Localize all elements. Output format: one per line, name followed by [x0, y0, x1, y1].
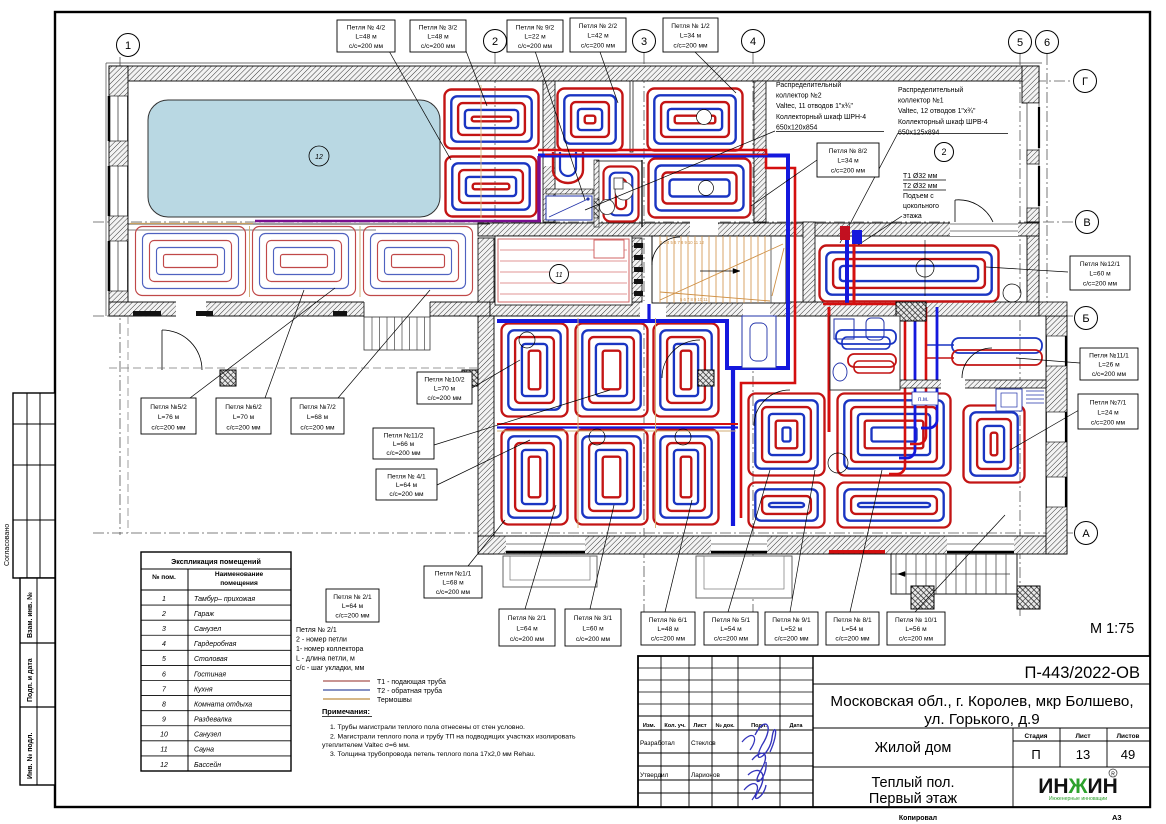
svg-text:Сауна: Сауна: [194, 747, 214, 754]
svg-text:А3: А3: [1112, 813, 1122, 822]
svg-text:Петля № 3/2: Петля № 3/2: [419, 25, 458, 32]
svg-text:650х120х854: 650х120х854: [776, 124, 818, 131]
svg-text:13: 13: [1076, 747, 1090, 762]
svg-text:Гардеробная: Гардеробная: [194, 640, 237, 648]
svg-text:М 1:75: М 1:75: [1090, 621, 1134, 637]
svg-text:5: 5: [162, 656, 166, 663]
svg-text:этажа: этажа: [903, 213, 922, 220]
svg-text:5: 5: [1017, 37, 1023, 49]
svg-text:2: 2: [941, 147, 946, 157]
svg-text:4: 4: [162, 641, 166, 648]
svg-text:Петля № 2/1: Петля № 2/1: [296, 627, 337, 634]
svg-text:Теплый пол.: Теплый пол.: [871, 775, 954, 791]
svg-text:с/с=200 мм: с/с=200 мм: [835, 636, 870, 643]
svg-text:Б: Б: [1082, 313, 1089, 325]
svg-text:Санузел: Санузел: [194, 626, 221, 633]
svg-text:1. Трубы магистрали теплого: 1. Трубы магистрали теплого пола отнесен…: [330, 723, 525, 731]
svg-text:с/с=200 мм: с/с=200 мм: [335, 613, 370, 620]
svg-text:Петля № 2/1: Петля № 2/1: [508, 615, 547, 622]
svg-text:с/с=200 мм: с/с=200 мм: [389, 491, 424, 498]
svg-text:коллектор №2: коллектор №2: [776, 93, 822, 100]
svg-text:Кол. уч.: Кол. уч.: [664, 723, 686, 729]
svg-text:Петля №7/2: Петля №7/2: [299, 404, 336, 411]
svg-text:1: 1: [125, 40, 131, 52]
svg-text:с/с=200 мм: с/с=200 мм: [831, 168, 866, 175]
svg-text:4: 4: [750, 36, 756, 48]
svg-text:Петля № 10/1: Петля № 10/1: [895, 617, 937, 624]
svg-text:49: 49: [1121, 747, 1135, 762]
svg-text:Разработал: Разработал: [640, 739, 675, 747]
svg-text:L=64 м: L=64 м: [396, 482, 418, 489]
svg-text:Распределительный: Распределительный: [776, 81, 841, 89]
svg-text:помещения: помещения: [220, 580, 258, 587]
svg-text:Подп. и дата: Подп. и дата: [27, 658, 34, 702]
svg-text:1: 1: [162, 596, 166, 603]
svg-text:Подъем с: Подъем с: [903, 193, 934, 200]
svg-text:Московская обл., г. Королев, м: Московская обл., г. Королев, мкр Болшево…: [830, 693, 1133, 710]
svg-text:11: 11: [555, 272, 562, 279]
svg-text:Санузел: Санузел: [194, 732, 221, 739]
svg-text:коллектор №1: коллектор №1: [898, 98, 944, 105]
svg-text:с/с=200 мм: с/с=200 мм: [421, 43, 456, 50]
svg-text:L=54 м: L=54 м: [720, 626, 742, 633]
svg-text:Комната отдыха: Комната отдыха: [194, 700, 252, 708]
svg-text:2: 2: [492, 36, 498, 48]
svg-text:Т1 Ø32 мм: Т1 Ø32 мм: [903, 173, 938, 180]
svg-text:2 - номер петли: 2 - номер петли: [296, 637, 347, 644]
svg-text:Петля № 6/1: Петля № 6/1: [649, 617, 688, 624]
svg-text:Г: Г: [1082, 76, 1088, 88]
svg-text:L=52 м: L=52 м: [781, 626, 803, 633]
svg-text:Т2 Ø32 мм: Т2 Ø32 мм: [903, 183, 938, 190]
svg-text:Термошвы: Термошвы: [377, 697, 412, 704]
svg-text:с/с=200 мм: с/с=200 мм: [436, 589, 471, 596]
svg-text:с/с=200 мм: с/с=200 мм: [576, 636, 611, 643]
svg-text:Дата: Дата: [790, 723, 804, 729]
svg-text:Петля № 4/1: Петля № 4/1: [387, 473, 426, 480]
svg-text:Гостиная: Гостиная: [194, 671, 226, 678]
svg-text:с/с=200 мм: с/с=200 мм: [510, 636, 545, 643]
svg-text:Согласовано: Согласовано: [4, 524, 11, 566]
svg-text:L=26 м: L=26 м: [1098, 362, 1120, 369]
svg-text:п.м.: п.м.: [918, 397, 929, 403]
svg-text:Жилой дом: Жилой дом: [875, 740, 952, 756]
svg-text:L=60 м: L=60 м: [582, 625, 604, 632]
svg-text:с/с=200 мм: с/с=200 мм: [1091, 419, 1126, 426]
svg-text:Valtec, 11 отводов 1"х¾": Valtec, 11 отводов 1"х¾": [776, 103, 854, 110]
svg-text:L=34 м: L=34 м: [837, 158, 859, 165]
svg-text:L=68 м: L=68 м: [307, 414, 329, 421]
svg-text:6: 6: [1044, 37, 1050, 49]
svg-text:Лист: Лист: [693, 723, 706, 729]
svg-text:Петля №6/2: Петля №6/2: [225, 404, 262, 411]
svg-text:Наименование: Наименование: [215, 571, 264, 578]
svg-text:L=34 м: L=34 м: [680, 33, 702, 40]
svg-text:Петля № 1/2: Петля № 1/2: [671, 23, 710, 30]
svg-text:Петля № 2/2: Петля № 2/2: [579, 23, 618, 30]
svg-text:3: 3: [162, 626, 166, 633]
svg-text:Т2 - обратная труба: Т2 - обратная труба: [377, 687, 442, 695]
svg-text:Кухня: Кухня: [194, 686, 213, 693]
svg-text:Петля №12/1: Петля №12/1: [1080, 261, 1121, 268]
svg-text:Копировал: Копировал: [899, 815, 937, 822]
svg-text:Изм.: Изм.: [643, 723, 656, 729]
svg-text:Петля № 8/1: Петля № 8/1: [833, 617, 872, 624]
svg-text:с/с=200 мм: с/с=200 мм: [581, 43, 616, 50]
svg-text:12: 12: [160, 762, 168, 769]
svg-text:Петля №7/1: Петля №7/1: [1090, 400, 1127, 407]
svg-text:Раздевалка: Раздевалка: [194, 716, 232, 724]
svg-text:8: 8: [162, 701, 166, 708]
svg-text:№ док.: № док.: [715, 723, 735, 729]
svg-text:Первый этаж: Первый этаж: [869, 791, 957, 807]
svg-text:L=48 м: L=48 м: [657, 626, 679, 633]
svg-text:Инв. № подл.: Инв. № подл.: [26, 732, 34, 779]
svg-text:L=66 м: L=66 м: [393, 441, 415, 448]
svg-text:Утвердил: Утвердил: [640, 772, 669, 779]
svg-text:цокольного: цокольного: [903, 203, 939, 210]
svg-text:ул. Горького, д.9: ул. Горького, д.9: [924, 711, 1039, 728]
svg-text:Петля № 2/1: Петля № 2/1: [333, 594, 372, 601]
svg-text:Лист: Лист: [1075, 733, 1090, 740]
svg-text:с/с=200 мм: с/с=200 мм: [774, 636, 809, 643]
svg-text:6: 6: [162, 671, 166, 678]
svg-text:с/с=200 мм: с/с=200 мм: [899, 636, 934, 643]
svg-text:с/с=200 мм: с/с=200 мм: [386, 450, 421, 457]
svg-text:с/с=200 мм: с/с=200 мм: [1092, 371, 1127, 378]
svg-text:L=24 м: L=24 м: [1097, 409, 1119, 416]
svg-text:9: 9: [162, 717, 166, 724]
svg-text:П: П: [1031, 747, 1040, 762]
svg-text:L=54 м: L=54 м: [842, 626, 864, 633]
svg-text:Стадия: Стадия: [1024, 733, 1047, 740]
svg-text:Гараж: Гараж: [194, 611, 215, 618]
svg-text:L=64 м: L=64 м: [342, 603, 364, 610]
svg-text:L=60 м: L=60 м: [1089, 271, 1111, 278]
svg-text:В: В: [1083, 217, 1090, 229]
svg-text:Петля №11/1: Петля №11/1: [1089, 353, 1129, 360]
svg-text:Петля № 3/1: Петля № 3/1: [574, 615, 613, 622]
svg-text:Т1 - подающая труба: Т1 - подающая труба: [377, 678, 446, 686]
svg-text:№ пом.: № пом.: [152, 574, 176, 581]
svg-text:с/с=200 мм: с/с=200 мм: [518, 43, 553, 50]
svg-text:с/с=200 мм: с/с=200 мм: [151, 424, 186, 431]
svg-text:10: 10: [160, 732, 168, 739]
svg-text:2. Магистрали теплого пола: 2. Магистрали теплого пола и трубу ТП на…: [330, 733, 576, 741]
svg-text:Петля № 9/2: Петля № 9/2: [516, 25, 555, 32]
svg-text:Коллекторный шкаф ШРВ-4: Коллекторный шкаф ШРВ-4: [898, 118, 988, 126]
svg-text:Тамбур– прихожая: Тамбур– прихожая: [194, 595, 255, 603]
svg-text:Взам. инв. №: Взам. инв. №: [26, 592, 34, 638]
svg-text:5 6 7 8 9 10 11: 5 6 7 8 9 10 11: [680, 297, 708, 302]
svg-text:2 3 4 5 6 7 8 9 10 11 12: 2 3 4 5 6 7 8 9 10 11 12: [660, 240, 705, 245]
svg-text:с/с=200 мм: с/с=200 мм: [349, 43, 384, 50]
svg-text:Листов: Листов: [1117, 733, 1140, 740]
svg-text:Петля №5/2: Петля №5/2: [150, 404, 187, 411]
svg-text:L=76 м: L=76 м: [158, 414, 180, 421]
svg-text:3. Толщина трубопровода пет: 3. Толщина трубопровода петель теплого п…: [330, 750, 536, 758]
svg-text:с/с=200 мм: с/с=200 мм: [673, 43, 708, 50]
svg-text:L - длина петли, м: L - длина петли, м: [296, 656, 355, 663]
svg-text:Экспликация помещений: Экспликация помещений: [171, 557, 261, 566]
svg-text:Петля № 5/1: Петля № 5/1: [712, 617, 751, 624]
svg-text:L=64 м: L=64 м: [516, 625, 538, 632]
svg-text:Петля № 9/1: Петля № 9/1: [772, 617, 811, 624]
svg-text:L=48 м: L=48 м: [355, 34, 377, 41]
svg-text:с/с=200 мм: с/с=200 мм: [300, 424, 335, 431]
svg-text:L=70 м: L=70 м: [434, 386, 456, 393]
svg-text:650х125х894: 650х125х894: [898, 129, 940, 136]
svg-text:1- номер коллектора: 1- номер коллектора: [296, 646, 363, 653]
svg-text:L=70 м: L=70 м: [233, 414, 255, 421]
svg-text:с/с=200 мм: с/с=200 мм: [714, 636, 749, 643]
svg-text:Бассейн: Бассейн: [194, 761, 221, 769]
svg-text:А: А: [1082, 528, 1090, 540]
svg-text:Петля №1/1: Петля №1/1: [435, 571, 472, 578]
svg-text:Столовая: Столовая: [194, 656, 228, 663]
svg-text:3: 3: [641, 36, 647, 48]
svg-text:П-443/2022-ОВ: П-443/2022-ОВ: [1024, 664, 1140, 682]
svg-text:с/с - шаг укладки, мм: с/с - шаг укладки, мм: [296, 665, 365, 672]
svg-text:L=22 м: L=22 м: [524, 34, 546, 41]
svg-text:12: 12: [315, 154, 323, 161]
svg-text:с/с=200 мм: с/с=200 мм: [427, 395, 462, 402]
svg-text:Петля №11/2: Петля №11/2: [384, 432, 424, 439]
svg-text:Петля № 8/2: Петля № 8/2: [829, 148, 868, 155]
svg-text:Коллекторный шкаф ШРН-4: Коллекторный шкаф ШРН-4: [776, 113, 866, 121]
svg-text:L=48 м: L=48 м: [427, 34, 449, 41]
svg-text:с/с=200 мм: с/с=200 мм: [651, 636, 686, 643]
svg-text:L=56 м: L=56 м: [905, 626, 927, 633]
svg-text:R: R: [1111, 772, 1115, 778]
svg-text:Инженерные инновации: Инженерные инновации: [1049, 796, 1107, 802]
svg-text:Петля №10/2: Петля №10/2: [424, 377, 465, 384]
svg-text:с/с=200 мм: с/с=200 мм: [226, 424, 261, 431]
svg-text:ИНЖИН: ИНЖИН: [1038, 775, 1118, 798]
svg-text:L=42 м: L=42 м: [587, 33, 609, 40]
svg-text:Распределительный: Распределительный: [898, 86, 963, 94]
svg-text:с/с=200 мм: с/с=200 мм: [1083, 281, 1118, 288]
svg-text:утеплителем Valtec σ=6 мм.: утеплителем Valtec σ=6 мм.: [322, 742, 410, 749]
svg-text:Стеклов: Стеклов: [691, 740, 716, 747]
svg-text:11: 11: [160, 747, 167, 754]
svg-text:Valtec, 12 отводов 1"х¾": Valtec, 12 отводов 1"х¾": [898, 108, 976, 115]
svg-text:Петля № 4/2: Петля № 4/2: [347, 25, 386, 32]
svg-text:L=68 м: L=68 м: [442, 580, 464, 587]
svg-text:Ларионов: Ларионов: [691, 772, 721, 779]
svg-text:Примечания:: Примечания:: [322, 707, 370, 716]
svg-text:2: 2: [161, 611, 166, 618]
